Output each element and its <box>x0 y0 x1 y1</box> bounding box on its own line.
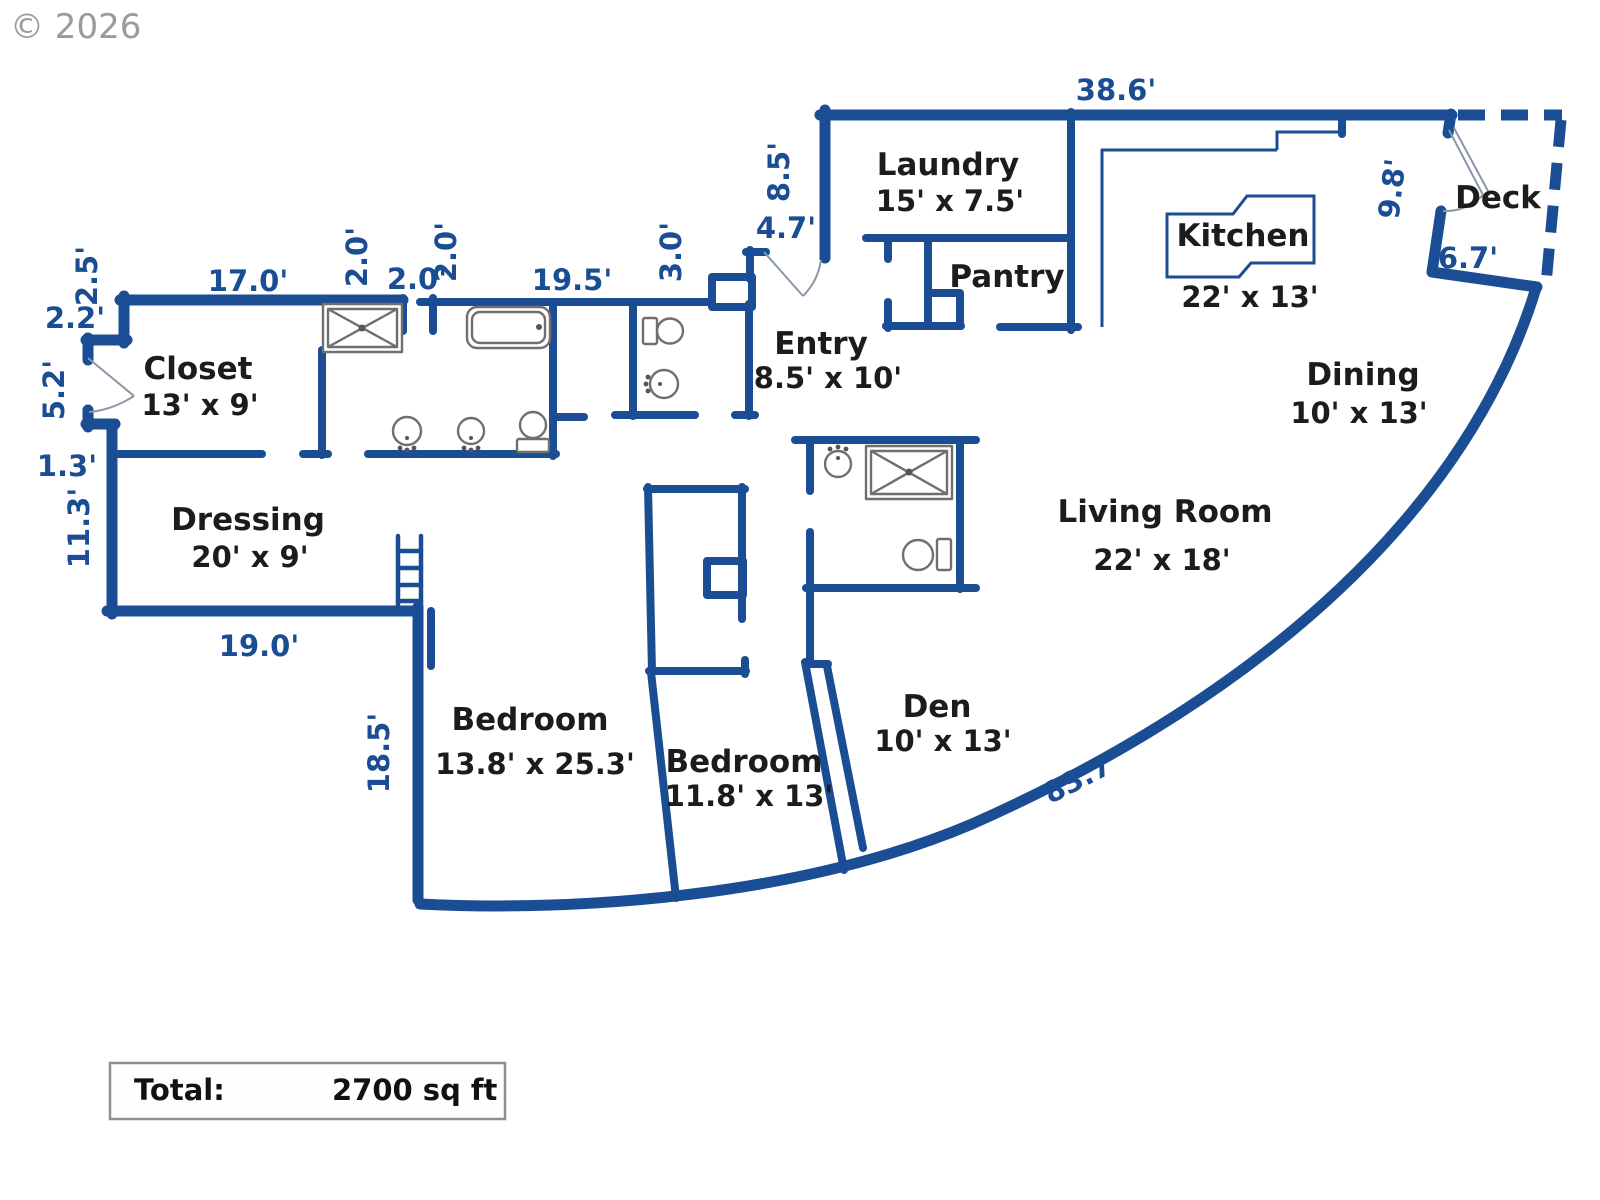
closet-door-leaf <box>88 358 134 396</box>
shower-master-fixture <box>323 304 402 352</box>
label-dressing: Dressing <box>171 502 325 538</box>
label-bedroom1-dims: 13.8' x 25.3' <box>435 747 635 781</box>
total-label: Total: <box>134 1073 225 1107</box>
dim-left-b: 2.5' <box>70 246 104 306</box>
label-bedroom2-dims: 11.8' x 13' <box>665 779 834 813</box>
total-value: 2700 sq ft <box>332 1073 498 1107</box>
label-dressing-dims: 20' x 9' <box>191 540 308 574</box>
dim-closet-top: 17.0' <box>208 264 288 298</box>
label-deck: Deck <box>1455 180 1542 216</box>
dim-bath-top: 19.5' <box>532 263 612 297</box>
copyright-text: © 2026 <box>10 7 141 47</box>
floor-plan-page: 38.6' 8.5' 4.7' 3.0' 9.8' 6.7' 17.0' 2.0… <box>0 0 1600 1200</box>
label-living: Living Room <box>1057 494 1272 530</box>
entry-door-leaf <box>764 252 803 296</box>
vanity-sink-1-fixture <box>393 417 421 452</box>
dim-left-e: 11.3' <box>62 488 96 568</box>
dim-dressing-bottom: 19.0' <box>219 629 299 663</box>
dim-jog-a: 2.0' <box>340 227 374 287</box>
floor-plan-canvas: 38.6' 8.5' 4.7' 3.0' 9.8' 6.7' 17.0' 2.0… <box>0 0 1600 1200</box>
dim-jog-c: 2.0' <box>429 222 463 282</box>
bath2-shower-fixture <box>866 446 952 499</box>
counter-top-jog <box>1277 132 1338 150</box>
dim-powder-side: 3.0' <box>654 222 688 282</box>
label-den: Den <box>903 689 972 725</box>
deck-dash-right <box>1546 120 1561 284</box>
powder-sink-fixture <box>644 370 678 398</box>
label-laundry-dims: 15' x 7.5' <box>876 184 1024 218</box>
label-entry-dims: 8.5' x 10' <box>754 361 902 395</box>
dim-left-c: 5.2' <box>37 360 71 420</box>
label-kitchen: Kitchen <box>1176 218 1309 254</box>
dim-curve: 83.7' <box>1038 744 1125 811</box>
label-pantry: Pantry <box>949 259 1064 295</box>
label-entry: Entry <box>774 326 868 362</box>
dim-left-d: 1.3' <box>37 449 97 483</box>
bathtub-fixture <box>467 307 550 348</box>
dim-entry-top: 4.7' <box>756 211 816 245</box>
pantry-closet-box <box>928 293 960 326</box>
label-dining-dims: 10' x 13' <box>1290 396 1427 430</box>
entry-door-arc <box>803 260 821 296</box>
dim-deck-bottom: 6.7' <box>1438 241 1498 275</box>
dimension-labels: 38.6' 8.5' 4.7' 3.0' 9.8' 6.7' 17.0' 2.0… <box>37 73 1498 810</box>
label-den-dims: 10' x 13' <box>874 724 1011 758</box>
label-closet: Closet <box>144 351 253 387</box>
bath2-sink-fixture <box>825 445 851 477</box>
total-area-box: Total: 2700 sq ft <box>110 1063 505 1119</box>
dim-laundry-side: 8.5' <box>762 142 796 202</box>
label-living-dims: 22' x 18' <box>1093 543 1230 577</box>
label-closet-dims: 13' x 9' <box>141 388 258 422</box>
dim-deck-side: 9.8' <box>1372 157 1413 221</box>
label-bedroom1: Bedroom <box>451 702 608 738</box>
vanity-sink-2-fixture <box>458 418 484 452</box>
master-toilet-fixture <box>517 412 549 452</box>
powder-toilet-fixture <box>643 318 683 344</box>
label-laundry: Laundry <box>877 147 1020 183</box>
closet-shelves <box>398 536 421 606</box>
dim-top: 38.6' <box>1076 73 1156 107</box>
label-dining: Dining <box>1306 357 1419 393</box>
wall-closet2-left <box>648 487 652 672</box>
bath2-toilet-fixture <box>903 539 951 570</box>
label-bedroom2: Bedroom <box>665 744 822 780</box>
label-kitchen-dims: 22' x 13' <box>1181 280 1318 314</box>
closet-door-arc <box>89 396 134 412</box>
closet2-inner-box <box>707 561 743 595</box>
dim-bedroom-side: 18.5' <box>362 713 396 793</box>
